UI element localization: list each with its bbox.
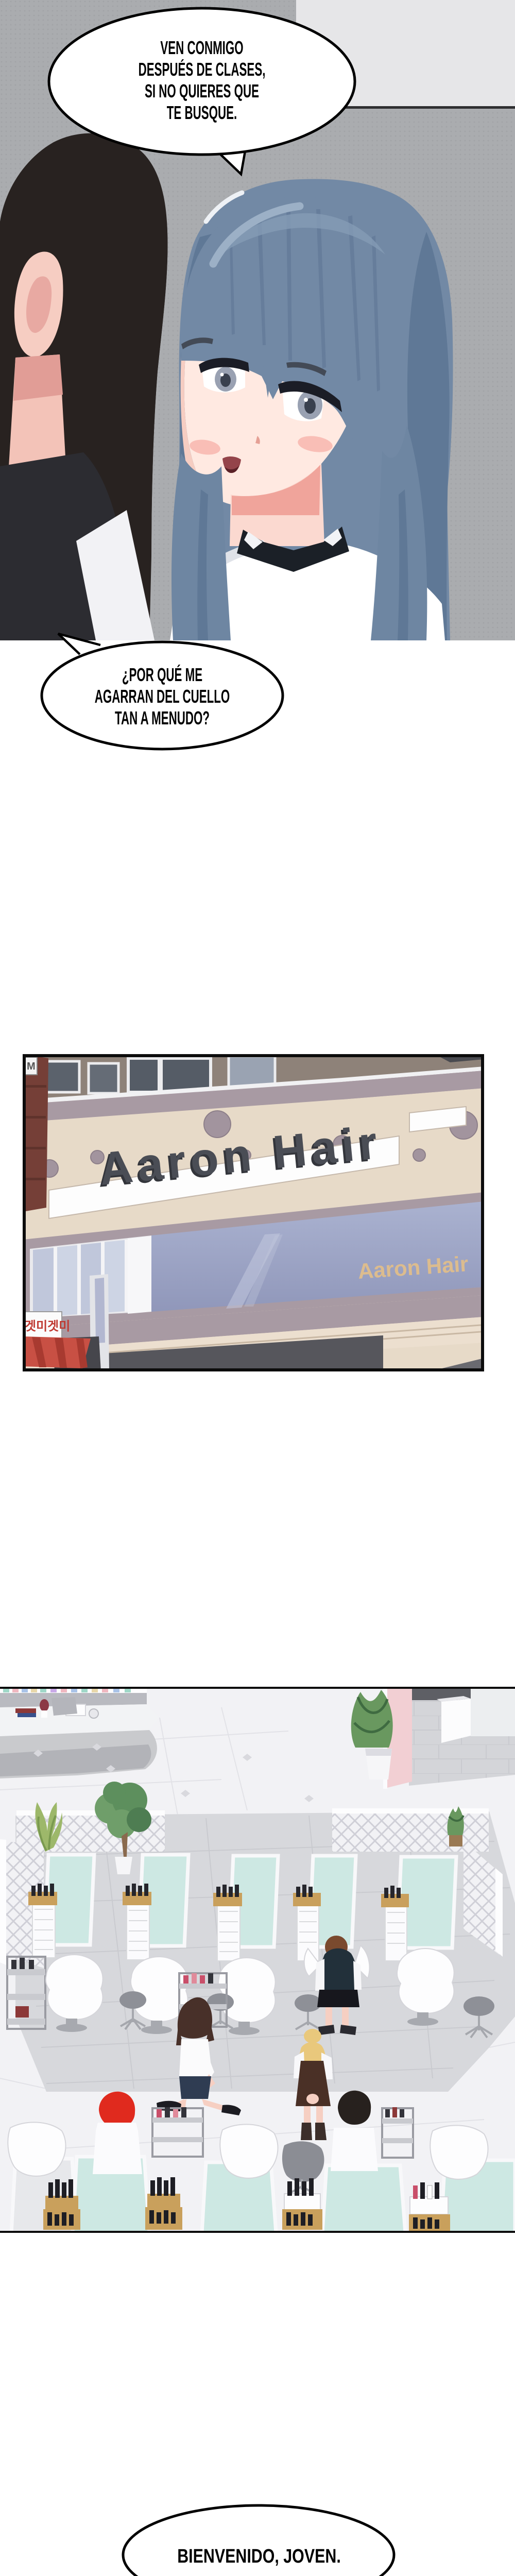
svg-text:겟미겟미: 겟미겟미 (25, 1319, 70, 1333)
svg-text:M: M (27, 1061, 36, 1072)
